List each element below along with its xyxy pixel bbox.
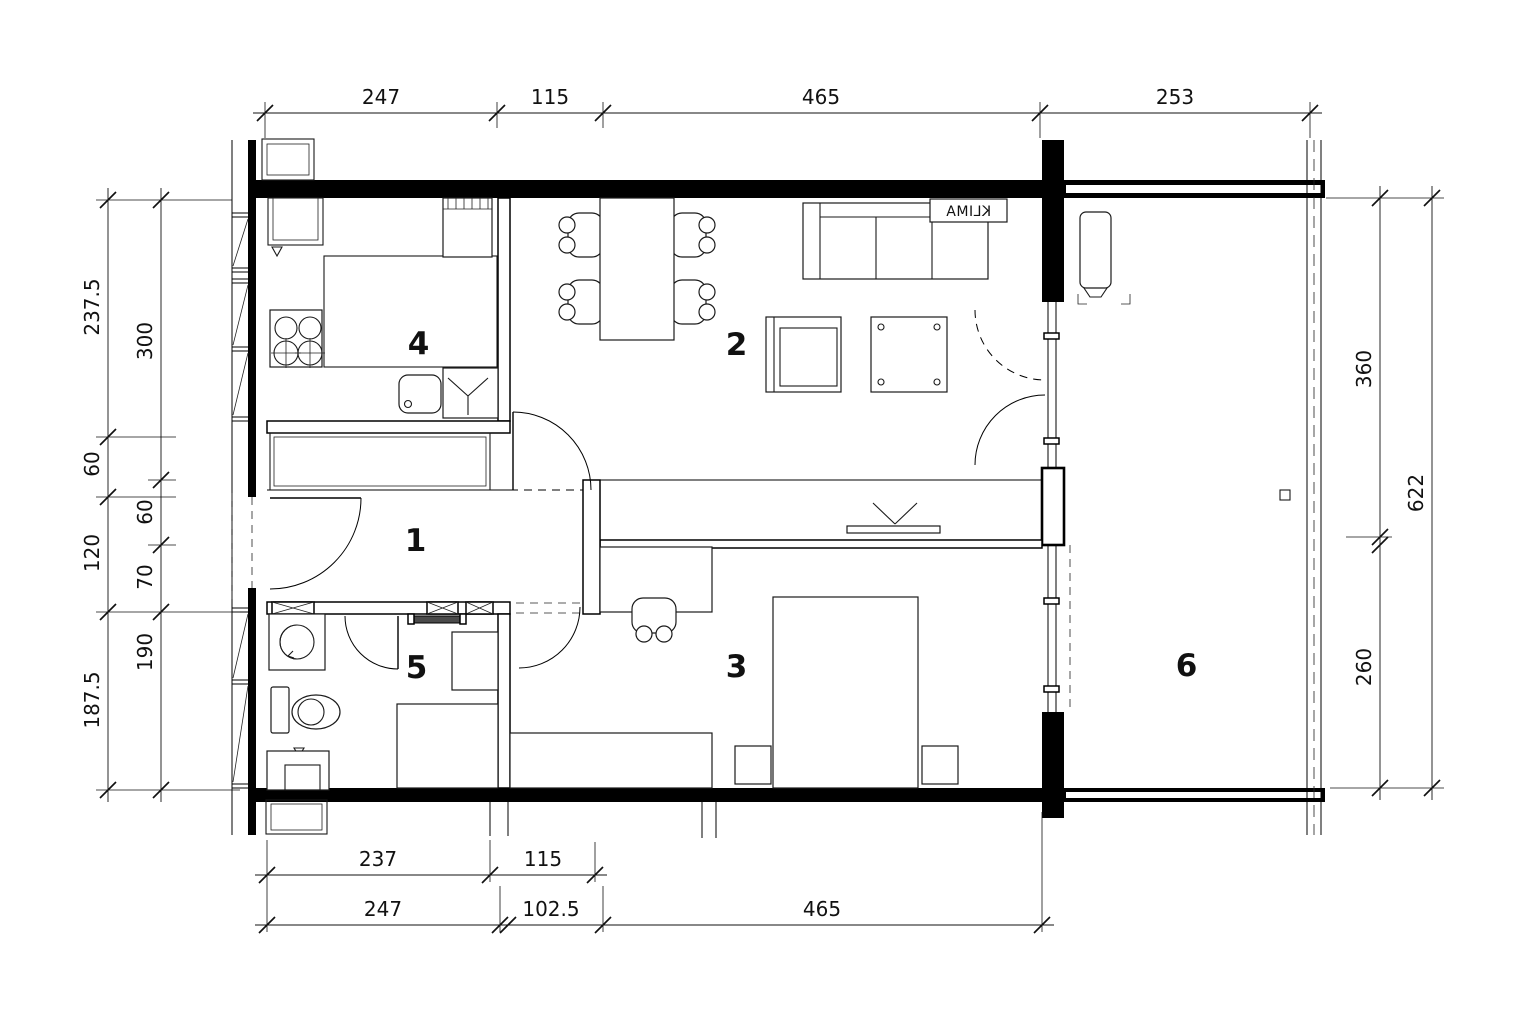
dim-label: 465	[802, 85, 840, 109]
balcony-door-swing	[975, 395, 1045, 465]
shaft-bottom-inner	[271, 804, 322, 830]
window-swing-line	[233, 353, 248, 415]
top-wall-cavity	[1066, 185, 1321, 193]
nightstand	[735, 746, 771, 784]
hall-closet-inner	[274, 437, 486, 486]
entry-door-swing	[270, 498, 361, 589]
shaft-kitchen-inner	[273, 198, 318, 240]
room-label-kitchen: 4	[408, 326, 431, 362]
dim-label: 465	[803, 897, 841, 921]
dim-label: 70	[133, 564, 157, 589]
balcony-railing	[1307, 140, 1321, 835]
desk-chair	[632, 598, 676, 642]
window-mullion	[232, 784, 249, 788]
fridge-symbol	[443, 198, 492, 257]
window-swing-line	[233, 219, 248, 266]
room-label-balcony: 6	[1176, 648, 1199, 684]
radiator-end	[408, 614, 414, 624]
bathroom-cabinet	[452, 632, 498, 690]
bedroom-door-swing	[519, 607, 580, 668]
dim-label: 102.5	[522, 897, 579, 921]
ac-unit-base	[1084, 288, 1107, 297]
dim-label: 115	[531, 85, 569, 109]
hall-closet	[270, 433, 490, 490]
dining-chair	[559, 280, 603, 324]
ac-unit	[1080, 212, 1111, 288]
glazing-mullion	[1044, 333, 1059, 339]
wardrobe	[510, 733, 712, 788]
dim-label: 360	[1352, 350, 1376, 388]
bottom-wall-cavity	[1066, 792, 1321, 798]
dining-chair	[559, 213, 603, 257]
window-mullion	[232, 417, 249, 421]
ac-bracket-mark	[1078, 294, 1087, 304]
dim-label: 187.5	[80, 671, 104, 728]
dim-label: 247	[362, 85, 400, 109]
tv-bracket	[895, 503, 917, 524]
dim-label: 60	[80, 451, 104, 476]
window-mullion	[232, 347, 249, 351]
dim-label: 300	[133, 322, 157, 360]
shaft-bottom	[266, 800, 327, 834]
window-mullion	[232, 279, 249, 283]
kitchen-living-wall	[498, 198, 510, 421]
sink-symbol	[399, 375, 441, 413]
bed	[773, 597, 918, 788]
vanity	[397, 704, 498, 788]
coffee-table	[871, 317, 947, 392]
glazing-mullion	[1044, 438, 1059, 444]
dim-label: 115	[524, 847, 562, 871]
washing-machine	[269, 614, 325, 670]
tv-bracket	[873, 503, 895, 524]
dimension-bottom: 237 115 247 102.5 465	[255, 812, 1054, 933]
dim-label: 120	[80, 534, 104, 572]
dim-label: 237	[359, 847, 397, 871]
railing-handle	[1280, 490, 1290, 500]
balcony-wall-pier-middle	[1042, 468, 1064, 545]
vent-triangle	[272, 247, 282, 256]
toilet-tank	[271, 687, 289, 733]
dining-chair	[671, 280, 715, 324]
balcony-door-swing-dashed	[975, 310, 1045, 380]
hall	[232, 433, 490, 624]
dim-label: 247	[364, 897, 402, 921]
kitchen-door-swing	[513, 412, 591, 490]
bedroom-door-opening	[516, 602, 582, 614]
dim-label: 253	[1156, 85, 1194, 109]
dim-label: 237.5	[80, 278, 104, 335]
bathroom-bedroom-wall	[498, 614, 510, 788]
dimension-top: 247 115 465 253	[253, 85, 1322, 138]
dimension-right: 360 260 622	[1326, 186, 1444, 800]
hall-pier	[583, 480, 600, 614]
window-swing-line	[233, 285, 248, 345]
glazing-mullion	[1044, 686, 1059, 692]
window-mullion	[232, 680, 249, 684]
radiator	[412, 616, 462, 623]
left-wall	[248, 140, 256, 835]
window-swing-line	[233, 686, 248, 782]
shaft-top	[262, 139, 314, 180]
room-label-living: 2	[726, 327, 749, 363]
room-label-bathroom: 5	[406, 650, 429, 686]
klima-label: KLIMA	[946, 204, 991, 220]
balcony	[1078, 212, 1290, 500]
ac-bracket-mark	[1121, 294, 1130, 304]
dim-label: 622	[1404, 474, 1428, 512]
balcony-wall-stub-top	[1042, 140, 1064, 198]
balcony-wall-pier-top	[1042, 198, 1064, 302]
dimension-left: 237.5 60 120 187.5 300 60 70 190	[80, 188, 240, 802]
bathroom-door-swing	[345, 616, 398, 669]
bathroom	[267, 614, 498, 790]
radiator-end	[460, 614, 466, 624]
glazing-mullion	[1044, 598, 1059, 604]
shaft-top-inner	[267, 144, 309, 175]
dining-table	[600, 198, 674, 340]
dim-label: 60	[133, 499, 157, 524]
kitchen-bottom-wall	[267, 421, 510, 433]
balcony-wall-stub-bottom	[1042, 802, 1064, 818]
balcony-wall-pier-bottom	[1042, 712, 1064, 788]
nightstand	[922, 746, 958, 784]
dim-label: 260	[1352, 648, 1376, 686]
shaft-bottom-outer	[266, 800, 327, 834]
floor-plan-sheet: KLIMA	[0, 0, 1522, 1028]
floor-plan-drawing: KLIMA	[0, 0, 1522, 1028]
dining-chair	[671, 213, 715, 257]
shaft-kitchen	[268, 198, 323, 245]
window-mullion	[232, 268, 249, 272]
boiler-box	[443, 368, 498, 418]
window-mullion	[232, 608, 249, 612]
living-room: KLIMA	[559, 198, 1007, 533]
room-label-hall: 1	[405, 523, 428, 559]
dim-label: 190	[133, 633, 157, 671]
window-swing-line	[233, 614, 248, 678]
facade-window-strip	[232, 140, 249, 835]
room-label-bedroom: 3	[726, 649, 749, 685]
tv-symbol	[847, 526, 940, 533]
window-mullion	[232, 213, 249, 217]
